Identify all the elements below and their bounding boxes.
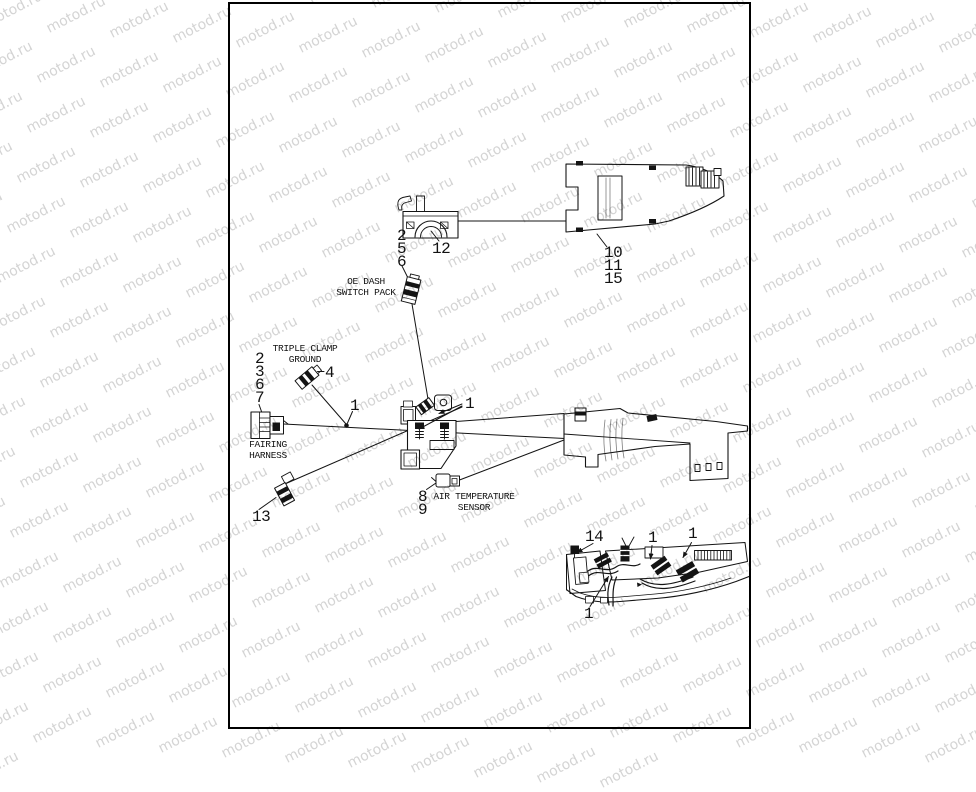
watermark-text: motod.ru bbox=[770, 203, 834, 246]
watermark-text: motod.ru bbox=[876, 313, 940, 356]
watermark-text: motod.ru bbox=[0, 393, 28, 436]
callout-14: 14 bbox=[585, 531, 603, 544]
watermark-text: motod.ru bbox=[50, 603, 114, 646]
watermark-text: motod.ru bbox=[909, 468, 973, 511]
watermark-text: motod.ru bbox=[790, 103, 854, 146]
watermark-text: motod.ru bbox=[0, 343, 38, 386]
watermark-text: motod.ru bbox=[100, 353, 164, 396]
parts-line-art bbox=[230, 4, 749, 727]
watermark-text: motod.ru bbox=[846, 463, 910, 506]
callout-items-2-3-6-7: 2 3 6 7 bbox=[255, 353, 264, 405]
watermark-text: motod.ru bbox=[750, 303, 814, 346]
watermark-text: motod.ru bbox=[0, 0, 45, 32]
watermark-text: motod.ru bbox=[906, 163, 970, 206]
air-temp-sensor-drawing bbox=[427, 474, 460, 490]
watermark-text: motod.ru bbox=[14, 143, 78, 186]
watermark-text: motod.ru bbox=[534, 743, 598, 786]
watermark-text: motod.ru bbox=[869, 668, 933, 711]
watermark-text: motod.ru bbox=[143, 458, 207, 501]
watermark-text: motod.ru bbox=[103, 658, 167, 701]
watermark-text: motod.ru bbox=[760, 253, 824, 296]
watermark-text: motod.ru bbox=[0, 138, 15, 181]
watermark-text: motod.ru bbox=[97, 48, 161, 91]
watermark-text: motod.ru bbox=[932, 673, 976, 716]
watermark-text: motod.ru bbox=[67, 198, 131, 241]
watermark-text: motod.ru bbox=[0, 748, 21, 791]
watermark-text: motod.ru bbox=[969, 168, 976, 211]
watermark-text: motod.ru bbox=[803, 358, 867, 401]
watermark-text: motod.ru bbox=[597, 748, 661, 791]
watermark-text: motod.ru bbox=[853, 108, 917, 151]
callout-12: 12 bbox=[432, 243, 450, 256]
watermark-text: motod.ru bbox=[166, 663, 230, 706]
watermark-text: motod.ru bbox=[0, 243, 58, 286]
watermark-text: motod.ru bbox=[783, 458, 847, 501]
caption-fairing-harness: FAIRING HARNESS bbox=[249, 440, 287, 461]
watermark-text: motod.ru bbox=[77, 148, 141, 191]
watermark-text: motod.ru bbox=[866, 363, 930, 406]
watermark-text: motod.ru bbox=[408, 733, 472, 776]
watermark-text: motod.ru bbox=[113, 608, 177, 651]
watermark-text: motod.ru bbox=[471, 738, 535, 781]
watermark-text: motod.ru bbox=[743, 658, 807, 701]
watermark-text: motod.ru bbox=[747, 0, 811, 42]
callout-1-lower-right: 1 bbox=[688, 528, 697, 541]
callout-1-lower-mid: 1 bbox=[648, 532, 657, 545]
watermark-text: motod.ru bbox=[282, 723, 346, 766]
watermark-text: motod.ru bbox=[856, 413, 920, 456]
watermark-text: motod.ru bbox=[0, 38, 35, 81]
watermark-text: motod.ru bbox=[796, 713, 860, 756]
callout-13: 13 bbox=[252, 511, 270, 524]
watermark-text: motod.ru bbox=[80, 453, 144, 496]
handlebar-clamp-drawing bbox=[398, 196, 566, 241]
watermark-text: motod.ru bbox=[936, 13, 976, 56]
watermark-text: motod.ru bbox=[800, 53, 864, 96]
watermark-text: motod.ru bbox=[823, 258, 887, 301]
watermark-text: motod.ru bbox=[889, 568, 953, 611]
right-fairing-drawing bbox=[564, 408, 748, 481]
watermark-text: motod.ru bbox=[0, 88, 25, 131]
bottom-inner-fairing-drawing bbox=[567, 537, 750, 607]
watermark-text: motod.ru bbox=[962, 523, 976, 566]
watermark-text: motod.ru bbox=[922, 723, 976, 766]
watermark-text: motod.ru bbox=[140, 153, 204, 196]
watermark-text: motod.ru bbox=[110, 303, 174, 346]
dash-switch-connector-drawing bbox=[401, 266, 428, 399]
callout-1-lower-bottom: 1 bbox=[584, 608, 593, 621]
watermark-text: motod.ru bbox=[93, 708, 157, 751]
watermark-text: motod.ru bbox=[0, 648, 41, 691]
callout-1-bracket: 1 bbox=[465, 398, 474, 411]
watermark-text: motod.ru bbox=[17, 448, 81, 491]
watermark-text: motod.ru bbox=[0, 493, 8, 536]
caption-triple-clamp-ground: TRIPLE CLAMP GROUND bbox=[273, 344, 338, 365]
callout-1-splice: 1 bbox=[350, 400, 359, 413]
watermark-text: motod.ru bbox=[4, 193, 68, 236]
watermark-text: motod.ru bbox=[833, 208, 897, 251]
watermark-text: motod.ru bbox=[806, 663, 870, 706]
watermark-text: motod.ru bbox=[34, 43, 98, 86]
watermark-text: motod.ru bbox=[959, 218, 976, 261]
watermark-text: motod.ru bbox=[170, 3, 234, 46]
fairing-harness-connector-drawing bbox=[251, 405, 288, 439]
watermark-text: motod.ru bbox=[123, 558, 187, 601]
watermark-text: motod.ru bbox=[793, 408, 857, 451]
watermark-text: motod.ru bbox=[810, 3, 874, 46]
watermark-text: motod.ru bbox=[44, 0, 108, 37]
watermark-text: motod.ru bbox=[0, 443, 18, 486]
watermark-text: motod.ru bbox=[886, 263, 950, 306]
watermark-text: motod.ru bbox=[939, 318, 976, 361]
watermark-text: motod.ru bbox=[0, 293, 48, 336]
watermark-text: motod.ru bbox=[133, 508, 197, 551]
watermark-text: motod.ru bbox=[7, 498, 71, 541]
callout-items-8-9: 8 9 bbox=[418, 491, 427, 517]
watermark-text: motod.ru bbox=[972, 473, 976, 516]
watermark-text: motod.ru bbox=[763, 558, 827, 601]
watermark-text: motod.ru bbox=[813, 308, 877, 351]
watermark-text: motod.ru bbox=[863, 58, 927, 101]
connector-13-drawing bbox=[259, 472, 303, 510]
watermark-text: motod.ru bbox=[87, 98, 151, 141]
watermark-text: motod.ru bbox=[0, 188, 5, 231]
watermark-text: motod.ru bbox=[949, 268, 976, 311]
watermark-text: motod.ru bbox=[816, 613, 880, 656]
watermark-text: motod.ru bbox=[926, 63, 976, 106]
diagram-stage: 2 5 6 12 OE DASH SWITCH PACK 10 11 15 TR… bbox=[0, 0, 976, 732]
callout-items-10-11-15: 10 11 15 bbox=[604, 247, 622, 286]
watermark-text: motod.ru bbox=[942, 623, 976, 666]
watermark-text: motod.ru bbox=[163, 358, 227, 401]
watermark-text: motod.ru bbox=[896, 213, 960, 256]
watermark-text: motod.ru bbox=[0, 548, 61, 591]
watermark-text: motod.ru bbox=[859, 718, 923, 761]
watermark-text: motod.ru bbox=[826, 563, 890, 606]
watermark-text: motod.ru bbox=[952, 573, 976, 616]
caption-oe-dash-switch-pack: OE DASH SWITCH PACK bbox=[336, 277, 395, 298]
watermark-text: motod.ru bbox=[30, 703, 94, 746]
watermark-text: motod.ru bbox=[0, 698, 31, 741]
watermark-text: motod.ru bbox=[40, 653, 104, 696]
watermark-text: motod.ru bbox=[153, 408, 217, 451]
watermark-text: motod.ru bbox=[70, 503, 134, 546]
watermark-text: motod.ru bbox=[150, 103, 214, 146]
watermark-text: motod.ru bbox=[120, 253, 184, 296]
watermark-text: motod.ru bbox=[0, 598, 51, 641]
watermark-text: motod.ru bbox=[60, 553, 124, 596]
callout-4: 4 bbox=[325, 367, 334, 380]
ground-connector-drawing bbox=[295, 364, 352, 428]
watermark-text: motod.ru bbox=[27, 398, 91, 441]
watermark-text: motod.ru bbox=[156, 713, 220, 756]
watermark-text: motod.ru bbox=[57, 248, 121, 291]
watermark-text: motod.ru bbox=[879, 618, 943, 661]
diagram-page: 2 5 6 12 OE DASH SWITCH PACK 10 11 15 TR… bbox=[228, 2, 751, 729]
watermark-text: motod.ru bbox=[873, 8, 937, 51]
watermark-text: motod.ru bbox=[780, 153, 844, 196]
center-bracket-assembly-drawing bbox=[401, 395, 462, 469]
caption-air-temperature-sensor: AIR TEMPERATURE SENSOR bbox=[433, 492, 514, 513]
watermark-text: motod.ru bbox=[90, 403, 154, 446]
watermark-text: motod.ru bbox=[37, 348, 101, 391]
nacelle-outline-drawing bbox=[566, 161, 724, 247]
watermark-text: motod.ru bbox=[929, 368, 976, 411]
watermark-text: motod.ru bbox=[916, 113, 976, 156]
watermark-text: motod.ru bbox=[160, 53, 224, 96]
watermark-text: motod.ru bbox=[47, 298, 111, 341]
watermark-text: motod.ru bbox=[773, 508, 837, 551]
watermark-text: motod.ru bbox=[843, 158, 907, 201]
watermark-text: motod.ru bbox=[24, 93, 88, 136]
watermark-text: motod.ru bbox=[345, 728, 409, 771]
watermark-text: motod.ru bbox=[753, 608, 817, 651]
callout-items-2-5-6: 2 5 6 bbox=[397, 230, 406, 269]
watermark-text: motod.ru bbox=[107, 0, 171, 42]
watermark-text: motod.ru bbox=[919, 418, 976, 461]
watermark-text: motod.ru bbox=[899, 518, 963, 561]
watermark-text: motod.ru bbox=[130, 203, 194, 246]
watermark-text: motod.ru bbox=[836, 513, 900, 556]
